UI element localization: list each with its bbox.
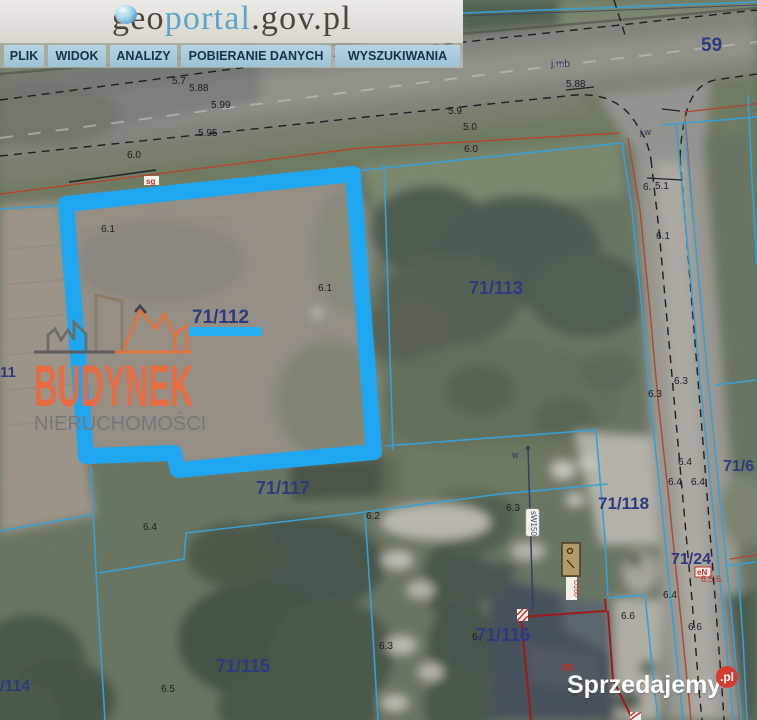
svg-text:6.4: 6.4 <box>678 457 692 468</box>
svg-text:71/116: 71/116 <box>476 625 530 645</box>
svg-text:6.1: 6.1 <box>318 283 332 294</box>
svg-text:NIERUCHOMOŚCI: NIERUCHOMOŚCI <box>34 411 206 435</box>
svg-text:6.3: 6.3 <box>379 641 393 652</box>
svg-text:5.1: 5.1 <box>655 181 669 192</box>
svg-text:6.: 6. <box>643 182 651 193</box>
svg-text:5.99: 5.99 <box>211 100 231 111</box>
svg-text:71/113: 71/113 <box>469 278 523 298</box>
svg-text:5.95: 5.95 <box>198 128 218 139</box>
svg-text:6.5: 6.5 <box>161 684 175 695</box>
svg-text:BUDYNEK: BUDYNEK <box>34 354 193 418</box>
svg-text:6.2: 6.2 <box>366 511 380 522</box>
svg-text:sg: sg <box>146 177 155 186</box>
svg-text:5.7: 5.7 <box>172 76 186 87</box>
svg-text:sW150: sW150 <box>529 511 538 536</box>
svg-text:6.4: 6.4 <box>663 590 677 601</box>
svg-text:/114: /114 <box>0 678 30 695</box>
svg-text:5.88: 5.88 <box>566 79 586 90</box>
svg-text:j.w: j.w <box>639 127 652 137</box>
svg-text:6.4: 6.4 <box>143 522 157 533</box>
svg-text:6.3: 6.3 <box>506 503 520 514</box>
svg-text:6.1: 6.1 <box>656 231 670 242</box>
svg-text:71/115: 71/115 <box>216 656 270 676</box>
svg-text:6.4: 6.4 <box>691 477 705 488</box>
svg-text:6.5 6.: 6.5 6. <box>701 574 724 584</box>
svg-text:5.0: 5.0 <box>463 122 477 133</box>
svg-text:w: w <box>511 450 519 460</box>
svg-text:6.3: 6.3 <box>674 376 688 387</box>
svg-text:6.6: 6.6 <box>621 611 635 622</box>
svg-text:11: 11 <box>0 364 16 381</box>
svg-text:71/117: 71/117 <box>256 478 310 498</box>
svg-text:6.0: 6.0 <box>127 150 141 161</box>
svg-text:6.3: 6.3 <box>648 389 662 400</box>
svg-text:6.4: 6.4 <box>668 477 682 488</box>
svg-text:59: 59 <box>701 35 722 56</box>
svg-text:71/24: 71/24 <box>671 551 711 568</box>
svg-text:6.6: 6.6 <box>688 622 702 633</box>
svg-text:6.0: 6.0 <box>464 144 478 155</box>
svg-text:71/6: 71/6 <box>723 458 754 475</box>
svg-text:5.88: 5.88 <box>189 83 209 94</box>
svg-text:6.1: 6.1 <box>101 224 115 235</box>
svg-text:U160: U160 <box>572 580 579 597</box>
svg-text:71/118: 71/118 <box>598 494 649 513</box>
svg-text:j.mb: j.mb <box>550 59 570 70</box>
svg-text:5.9: 5.9 <box>448 106 462 117</box>
